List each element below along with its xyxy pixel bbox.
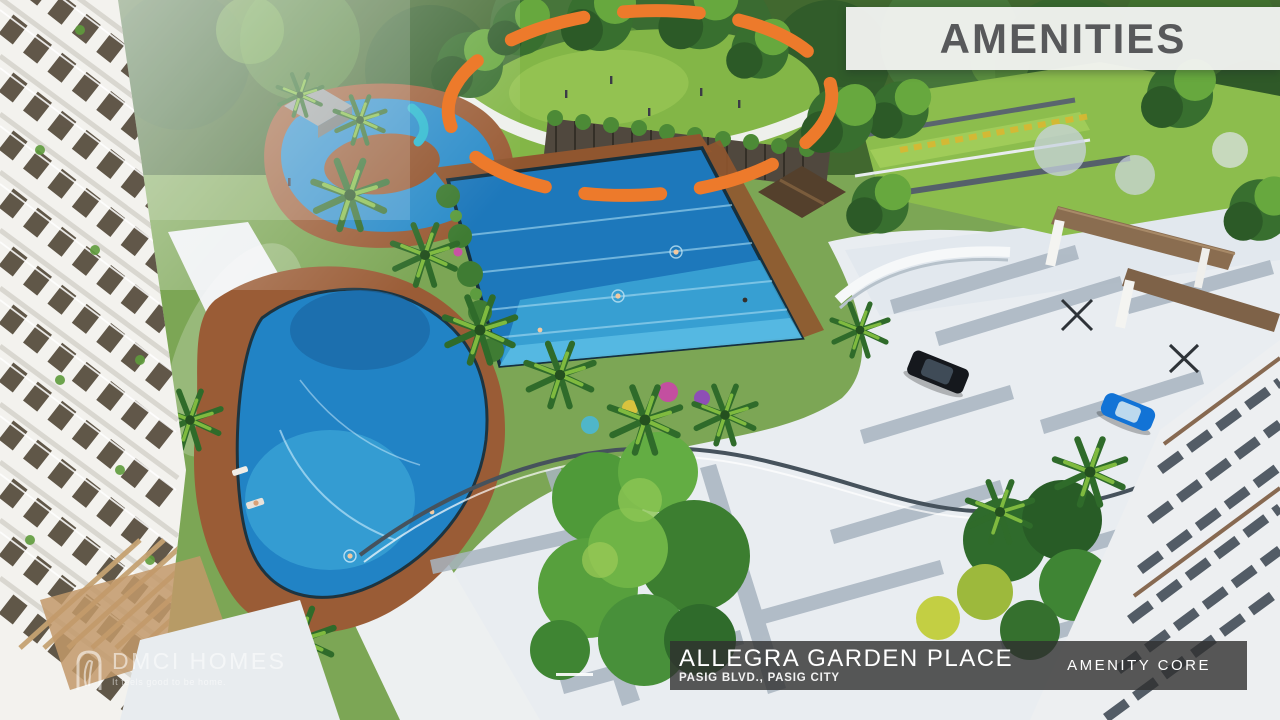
project-info-bar: ALLEGRA GARDEN PLACE PASIG BLVD., PASIG … — [670, 641, 1247, 690]
project-location: PASIG BLVD., PASIG CITY — [679, 672, 1067, 684]
project-info-text: ALLEGRA GARDEN PLACE PASIG BLVD., PASIG … — [670, 647, 1067, 684]
project-title: ALLEGRA GARDEN PLACE — [679, 647, 1067, 671]
aerial-render — [0, 0, 1280, 720]
amenities-banner-label: AMENITIES — [940, 15, 1187, 63]
info-bar-tick — [556, 673, 593, 676]
amenities-banner: AMENITIES — [846, 7, 1280, 70]
video-frame: AMENITIES ALLEGRA GARDEN PLACE PASIG BLV… — [0, 0, 1280, 720]
slide-label: AMENITY CORE — [1067, 657, 1247, 674]
